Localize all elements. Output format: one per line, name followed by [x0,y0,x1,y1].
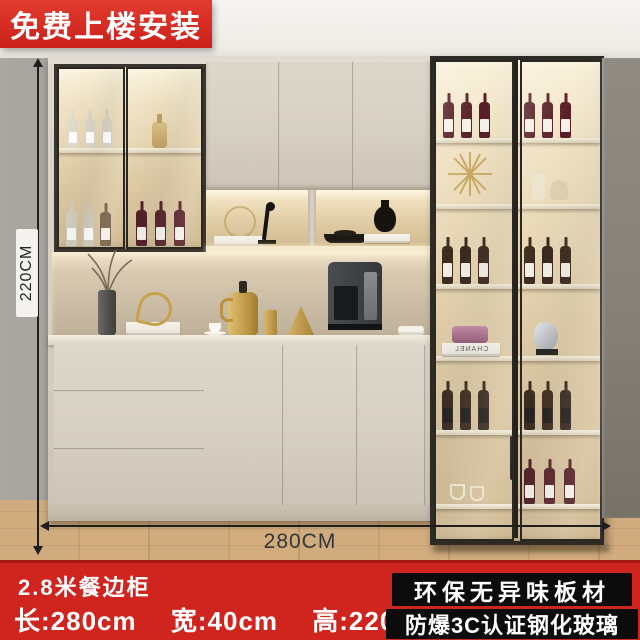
display-niche [206,190,434,252]
product-title: 2.8米餐边柜 [18,570,151,602]
door-seam [352,62,354,190]
product-image: CHANEL 220CM [0,0,640,640]
niche-divider [308,190,316,252]
drawer-seam [54,390,204,392]
pot-handle [220,298,233,322]
countertop [48,335,440,345]
black-vase-neck [381,200,389,208]
upper-cabinet-doors [206,62,434,190]
cabinet-center-stile [514,60,518,538]
bowl-stones [334,230,356,236]
coffee-cup [209,323,221,332]
width-dimension-line [46,525,604,527]
machine-base [328,324,382,330]
coffee-carafe [334,286,358,320]
left-cabinet-glass-door [126,67,203,249]
door-seam [282,345,284,505]
plant-decor [78,246,138,296]
dish-stack [398,326,424,335]
floor-shadow [434,545,610,552]
sculpture-base [258,240,276,244]
feature-badge-board: 环保无异味板材 [392,573,632,606]
door-seam [356,345,358,505]
door-seam [424,345,426,505]
gold-medallion-decor [224,206,256,238]
vase [98,290,116,335]
arrow-right-icon [602,521,611,531]
drawer-stack [54,345,204,505]
black-sculpture-head [266,202,275,211]
machine-panel [364,272,377,320]
gold-tumbler [264,310,277,335]
decor-books [364,234,410,243]
spec-length: 长:280cm [14,606,137,636]
drawer-seam [54,448,204,450]
promo-banner-text: 免费上楼安装 [10,2,202,46]
black-sculpture [262,206,270,240]
cabinet-plinth [48,505,440,521]
left-cabinet-glass-door [57,67,125,249]
right-wall [602,58,640,518]
black-vase [374,206,396,232]
arrow-up-icon [33,58,43,67]
coffee-machine [328,262,382,330]
left-glass-cabinet [54,64,206,252]
base-cabinet-doors [204,345,440,505]
feature-badge-glass: 防爆3C认证钢化玻璃 [386,609,638,639]
door-seam [278,62,280,190]
arrow-left-icon [40,521,49,531]
arrow-down-icon [33,546,43,555]
wine-cabinet-glass-door [434,60,514,541]
wine-display-cabinet: CHANEL [430,56,604,545]
promo-banner: 免费上楼安装 [0,0,212,48]
width-dimension-label: 280CM [240,529,360,555]
height-dimension-label: 220CM [16,229,38,317]
spec-width: 宽:40cm [171,606,278,636]
wine-cabinet-glass-door [520,60,604,541]
pot-lid-knob [239,281,247,293]
decor-books [214,236,264,246]
